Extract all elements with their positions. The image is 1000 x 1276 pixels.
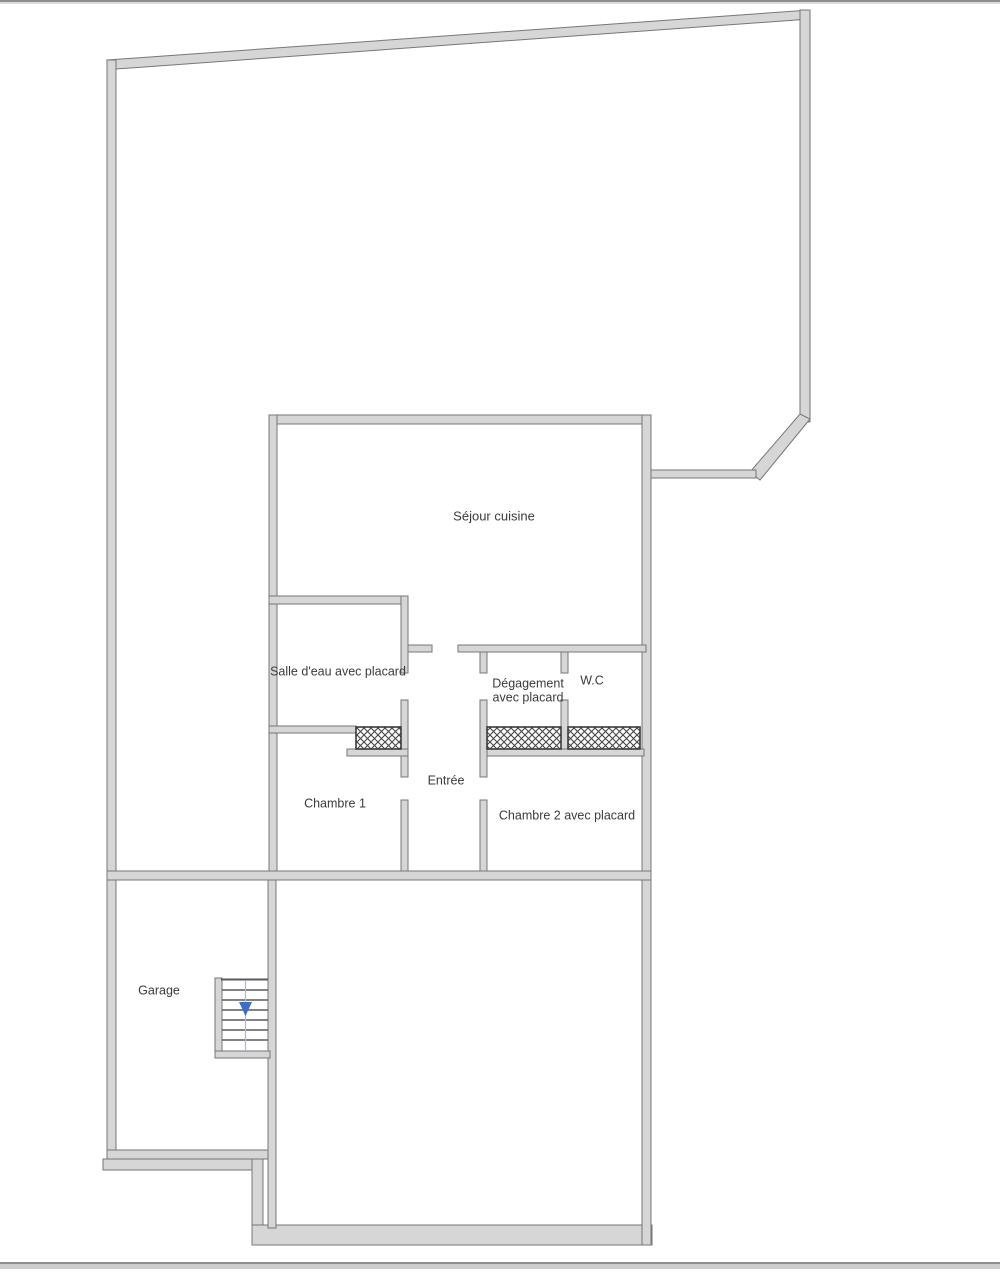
wc-partition-wall xyxy=(561,700,568,749)
stairs-left-wall xyxy=(215,978,222,1058)
garage-bottom-wall xyxy=(107,1150,268,1159)
placards xyxy=(356,727,640,749)
room-label-degagement-line2: avec placard xyxy=(492,691,564,705)
salle-eau-top-wall xyxy=(269,596,408,604)
chambre1-door-wall xyxy=(401,800,408,872)
stairs xyxy=(215,978,270,1058)
chambre2-upper-wall xyxy=(480,700,487,777)
placard1-bottom-wall xyxy=(347,749,408,756)
outer-wall-bottom-jog xyxy=(252,1159,263,1229)
room-label-garage: Garage xyxy=(138,984,180,998)
page-border-top xyxy=(0,0,1000,2)
placard23-bottom-wall xyxy=(487,749,644,756)
outer-wall-bottom-left xyxy=(103,1159,263,1170)
lower-room-bottom-wall xyxy=(252,1225,652,1245)
placard-hatch-wc-side xyxy=(568,727,640,749)
middle-dividing-wall xyxy=(107,871,651,880)
chambre2-door-wall xyxy=(480,800,487,872)
room-label-degagement-line1: Dégagement xyxy=(492,678,564,692)
room-label-chambre2: Chambre 2 avec placard xyxy=(499,809,635,823)
placard-hatch-degagement xyxy=(487,727,561,749)
room-label-wc: W.C xyxy=(580,674,604,688)
stairs-bottom-wall xyxy=(215,1051,270,1058)
stairs-down-arrow-icon xyxy=(239,1002,252,1016)
floor-plan-page: Séjour cuisine Salle d'eau avec placard … xyxy=(0,0,1000,1276)
apartment-right-wall xyxy=(642,415,651,1245)
room-label-entree: Entrée xyxy=(428,774,465,788)
floor-plan-drawing xyxy=(0,0,1000,1276)
outer-wall-left xyxy=(107,60,116,1170)
room-label-degagement: Dégagement avec placard xyxy=(492,678,564,705)
apartment-left-wall xyxy=(269,415,277,872)
room-label-sejour-cuisine: Séjour cuisine xyxy=(453,509,535,523)
room-label-chambre1: Chambre 1 xyxy=(304,797,366,811)
outer-wall-chamfer xyxy=(750,414,810,480)
sejour-door-stub xyxy=(408,645,432,652)
hall-top-wall xyxy=(458,645,646,652)
terrace-link-wall xyxy=(649,470,756,478)
sejour-top-wall xyxy=(269,415,651,424)
page-border-bottom-shade xyxy=(0,1264,1000,1269)
salle-eau-right-wall-upper xyxy=(401,596,408,673)
placard-hatch-chambre1 xyxy=(356,727,401,749)
degagement-door-jamb xyxy=(480,652,487,673)
salle-eau-bottom-wall xyxy=(269,726,356,733)
page-border-bottom xyxy=(0,1262,1000,1264)
outer-wall-right xyxy=(800,10,810,422)
apartment-walls xyxy=(107,415,651,1245)
room-label-salle-eau: Salle d'eau avec placard xyxy=(270,665,406,679)
outer-wall-top-sloped xyxy=(107,10,810,69)
page-border-top-shade xyxy=(0,2,1000,4)
salle-eau-right-wall-lower xyxy=(401,700,408,777)
outer-walls xyxy=(103,10,810,1245)
wc-door-jamb xyxy=(561,652,568,673)
